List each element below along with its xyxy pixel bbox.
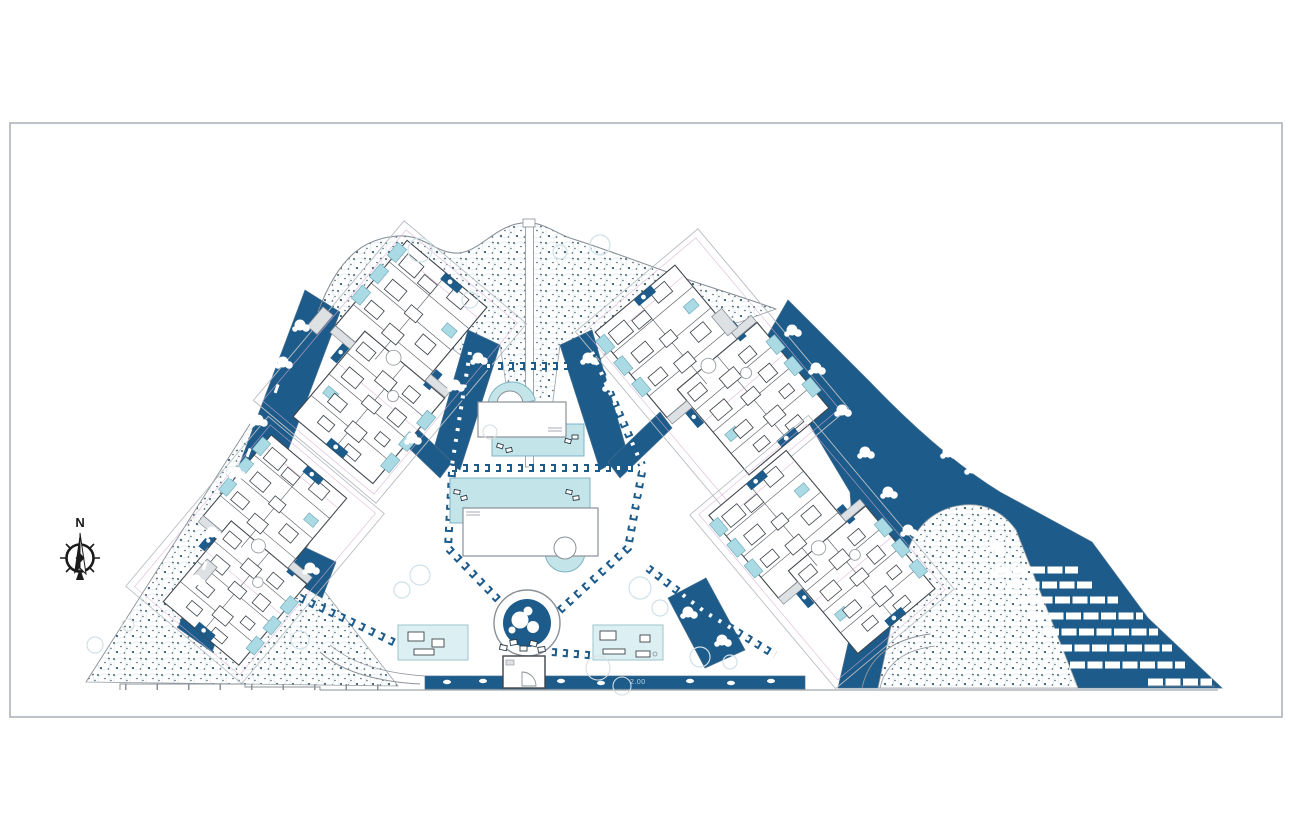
north-label: N xyxy=(75,515,84,530)
level-annotation: 2.00 xyxy=(630,679,646,686)
site-plan-drawing: 2.00 xyxy=(0,0,1290,840)
amenity-pavilion-left xyxy=(398,625,468,660)
site-plan-page: 2.00 xyxy=(0,0,1290,840)
bottom-planted-strip: 2.00 xyxy=(425,676,805,689)
amenity-pavilion-right xyxy=(593,625,663,660)
